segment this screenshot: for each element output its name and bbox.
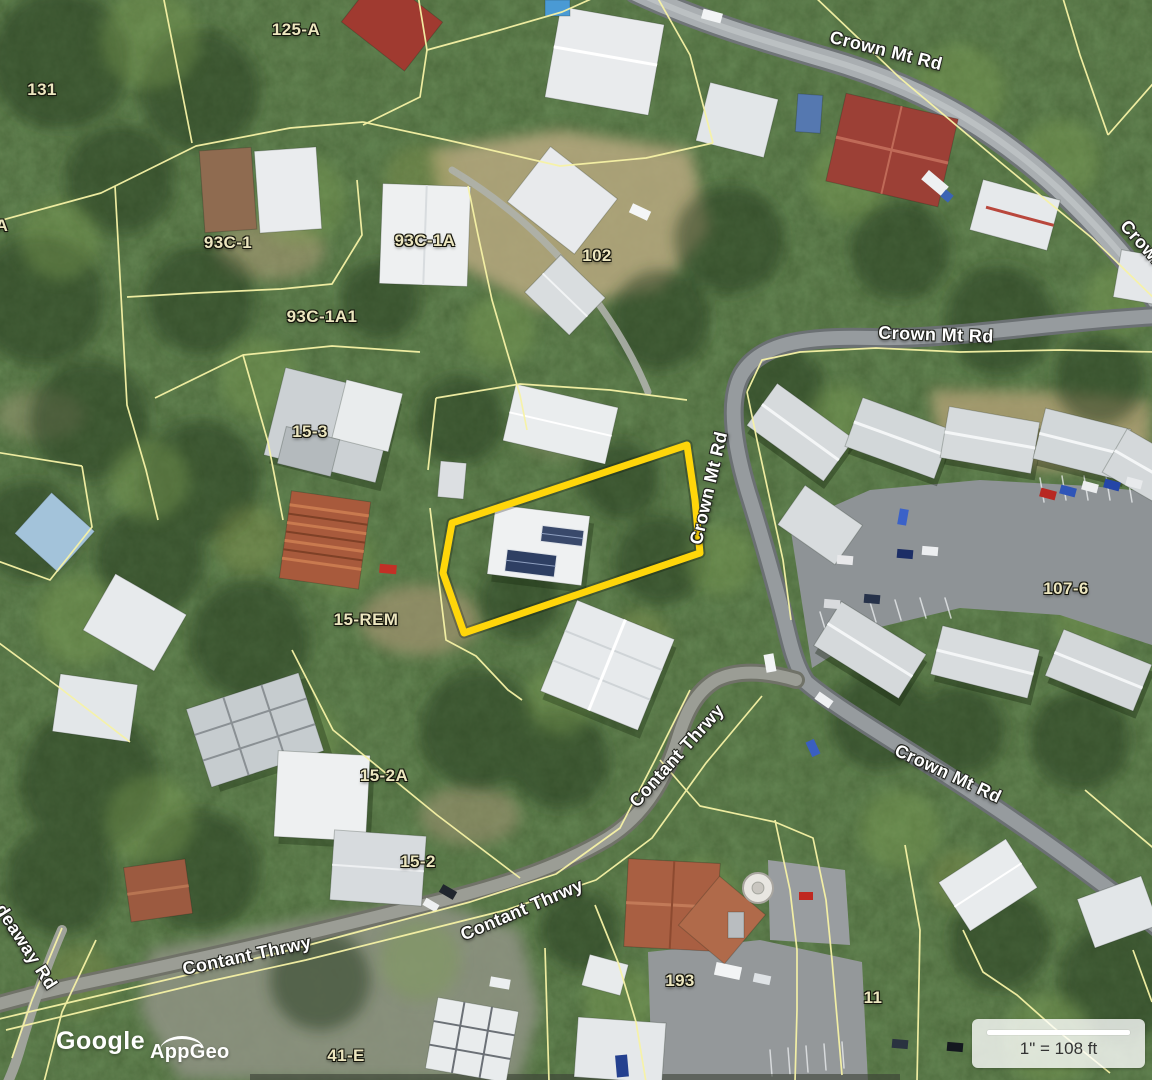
scale-bar: 1" = 108 ft (972, 1019, 1145, 1068)
parcel-label-107-6: 107-6 (1043, 579, 1088, 599)
scale-bar-text: 1" = 108 ft (1020, 1040, 1097, 1057)
google-logo: Google (56, 1027, 145, 1056)
parcel-label-125a: 125-A (272, 20, 320, 40)
aerial-imagery (0, 0, 1152, 1080)
parcel-label-93c1a: 93C-1A (395, 231, 456, 251)
parcel-label-93c1: 93C-1 (204, 233, 252, 253)
parcel-label-15-3: 15-3 (292, 422, 328, 442)
map-canvas[interactable]: 131 125-A A 93C-1 93C-1A 102 93C-1A1 15-… (0, 0, 1152, 1080)
parcel-label-41-e: 41-E (327, 1046, 365, 1066)
parcel-label-15-2: 15-2 (400, 852, 436, 872)
parcel-label-193: 193 (665, 971, 695, 991)
parcel-label-102: 102 (582, 246, 612, 266)
parcel-label-131: 131 (27, 80, 57, 100)
parcel-label-11: 11 (864, 988, 883, 1008)
appgeo-logo: AppGeo (150, 1041, 230, 1064)
road-label-crown-mt-rd-middle: Crown Mt Rd (878, 322, 994, 347)
scale-bar-line (987, 1030, 1130, 1035)
parcel-label-93c1a1: 93C-1A1 (287, 307, 358, 327)
parcel-label-a: A (0, 216, 8, 236)
parcel-label-15-2a: 15-2A (360, 766, 408, 786)
parcel-label-15-rem: 15-REM (334, 610, 399, 630)
